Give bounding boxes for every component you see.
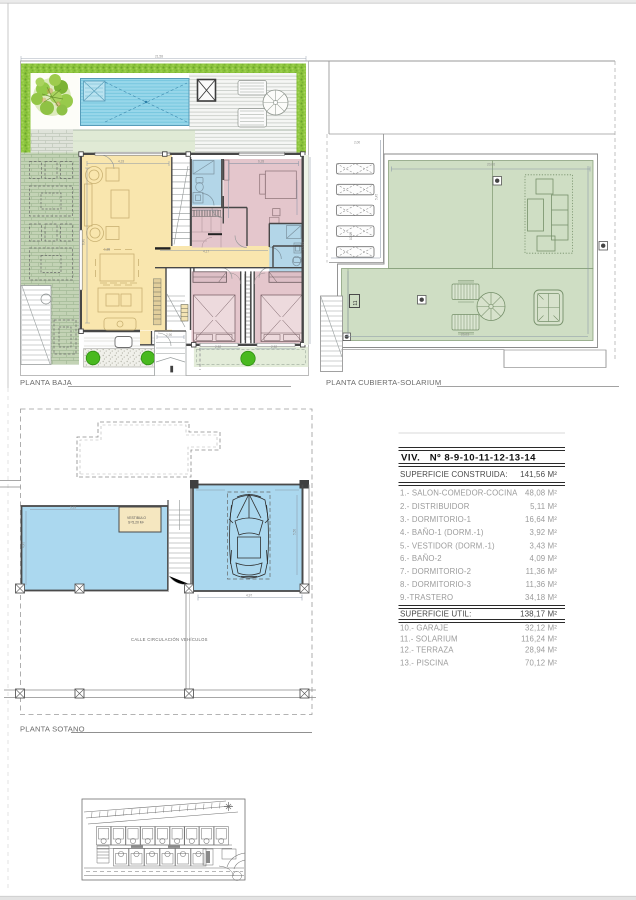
- svg-text:34,18 M²: 34,18 M²: [525, 593, 557, 602]
- svg-text:5,45: 5,45: [375, 194, 379, 200]
- svg-text:10.- GARAJE: 10.- GARAJE: [400, 624, 448, 633]
- svg-text:13.- PISCINA: 13.- PISCINA: [400, 659, 449, 668]
- svg-text:2,90: 2,90: [166, 333, 172, 337]
- svg-text:S=5,20 M²: S=5,20 M²: [128, 521, 145, 525]
- svg-text:VIV. Nº 8-9-10-11-12-13-14: VIV. Nº 8-9-10-11-12-13-14: [401, 453, 536, 464]
- svg-text:CALLE CIRCULACIÓN VEHÍCULOS: CALLE CIRCULACIÓN VEHÍCULOS: [131, 637, 208, 642]
- svg-text:6.- BAÑO-2: 6.- BAÑO-2: [400, 554, 442, 563]
- svg-text:3,92 M²: 3,92 M²: [530, 528, 558, 537]
- svg-text:PLANTA SOTANO: PLANTA SOTANO: [20, 725, 85, 734]
- svg-text:2,92: 2,92: [215, 345, 221, 349]
- svg-text:32,12 M²: 32,12 M²: [525, 624, 557, 633]
- svg-text:4,09 M²: 4,09 M²: [530, 554, 558, 563]
- svg-text:6,28: 6,28: [258, 159, 264, 163]
- svg-text:7.- DORMITORIO-2: 7.- DORMITORIO-2: [400, 567, 471, 576]
- svg-text:4,33: 4,33: [118, 159, 124, 163]
- svg-text:5,19: 5,19: [70, 506, 76, 510]
- svg-text:2,00: 2,00: [354, 141, 360, 145]
- svg-text:9.-TRASTERO: 9.-TRASTERO: [400, 593, 453, 602]
- svg-text:5,50: 5,50: [293, 529, 297, 535]
- svg-text:5.- VESTIDOR (DORM.-1): 5.- VESTIDOR (DORM.-1): [400, 542, 495, 551]
- svg-text:21,58: 21,58: [155, 55, 163, 59]
- svg-text:138,17 M²: 138,17 M²: [520, 609, 557, 618]
- svg-text:116,24 M²: 116,24 M²: [521, 635, 557, 644]
- svg-text:SUPERFICIE CONSTRUIDA:: SUPERFICIE CONSTRUIDA:: [400, 470, 508, 479]
- svg-text:SUPERFICIE UTIL:: SUPERFICIE UTIL:: [400, 609, 471, 618]
- svg-text:2.- DISTRIBUIDOR: 2.- DISTRIBUIDOR: [400, 502, 470, 511]
- svg-text:PLANTA BAJA: PLANTA BAJA: [20, 378, 73, 387]
- svg-text:11,36 M²: 11,36 M²: [526, 580, 558, 589]
- svg-text:48,08 M²: 48,08 M²: [525, 488, 557, 497]
- svg-text:28,94 M²: 28,94 M²: [525, 646, 557, 655]
- svg-text:16,64 M²: 16,64 M²: [525, 515, 557, 524]
- svg-text:4,17: 4,17: [203, 250, 209, 254]
- svg-text:4,45: 4,45: [22, 542, 26, 548]
- svg-text:2,92: 2,92: [271, 345, 277, 349]
- svg-text:70,12 M²: 70,12 M²: [525, 659, 557, 668]
- svg-text:141,56 M²: 141,56 M²: [520, 470, 557, 479]
- svg-text:5,11 M²: 5,11 M²: [530, 502, 557, 511]
- svg-text:20,06: 20,06: [487, 163, 495, 167]
- svg-text:1,88: 1,88: [104, 247, 110, 251]
- svg-text:12.- TERRAZA: 12.- TERRAZA: [400, 646, 454, 655]
- svg-text:PLANTA CUBIERTA-SOLARIUM: PLANTA CUBIERTA-SOLARIUM: [326, 378, 441, 387]
- svg-text:11: 11: [353, 300, 359, 305]
- svg-text:10,03: 10,03: [349, 232, 353, 240]
- svg-text:4.- BAÑO-1 (DORM.-1): 4.- BAÑO-1 (DORM.-1): [400, 528, 484, 537]
- svg-text:8.- DORMITORIO-3: 8.- DORMITORIO-3: [400, 580, 471, 589]
- svg-text:11,36 M²: 11,36 M²: [526, 567, 558, 576]
- svg-text:VESTIBULO: VESTIBULO: [127, 516, 146, 520]
- svg-text:3.- DORMITORIO-1: 3.- DORMITORIO-1: [400, 515, 471, 524]
- svg-text:20,03: 20,03: [461, 332, 469, 336]
- svg-text:4,97: 4,97: [246, 594, 252, 598]
- svg-text:6,40: 6,40: [82, 239, 86, 245]
- svg-text:3,43 M²: 3,43 M²: [530, 542, 558, 551]
- svg-text:1.- SALON-COMEDOR-COCINA: 1.- SALON-COMEDOR-COCINA: [400, 488, 518, 497]
- svg-text:11.- SOLARIUM: 11.- SOLARIUM: [400, 635, 458, 644]
